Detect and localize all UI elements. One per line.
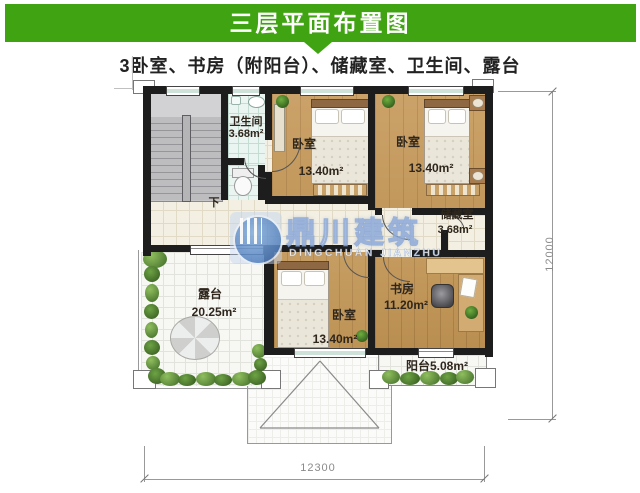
floor-plan-page: 三层平面布置图 3卧室、书房（附阳台）、储藏室、卫生间、露台 <box>0 0 640 493</box>
wall <box>221 93 228 200</box>
bed-headboard <box>424 99 470 108</box>
shrub <box>145 284 159 302</box>
bathroom-sink <box>248 96 265 108</box>
wall <box>143 245 190 252</box>
bed-headboard <box>311 99 369 108</box>
bedroom-label: 卧室 <box>396 133 420 150</box>
pillow <box>448 109 467 124</box>
bathroom-area: 3.68m² <box>229 128 264 140</box>
patio-umbrella <box>170 316 220 360</box>
pillow <box>428 109 447 124</box>
dimension-width: 12300 <box>293 462 343 474</box>
watermark-cn-text: 鼎川建筑 <box>286 208 422 252</box>
wall <box>368 93 375 210</box>
window <box>408 86 464 96</box>
bathroom-label: 卫生间 <box>230 113 263 129</box>
shrub <box>145 322 158 338</box>
pillow <box>304 271 325 286</box>
page-title: 三层平面布置图 <box>5 4 636 42</box>
wall <box>143 86 151 256</box>
shrub <box>214 374 232 386</box>
bed-bench <box>426 184 480 196</box>
study-area: 11.20m² <box>384 298 428 312</box>
window <box>166 86 200 96</box>
extension-line <box>132 56 133 90</box>
shrub <box>254 358 267 371</box>
shrub <box>196 372 216 386</box>
bedroom-label: 卧室 <box>292 135 316 152</box>
stair-handrail <box>182 115 191 202</box>
toilet-bowl <box>234 176 252 196</box>
wall <box>364 348 418 355</box>
wall <box>265 93 272 140</box>
window <box>294 348 366 358</box>
column <box>475 368 496 388</box>
shrub <box>382 370 400 384</box>
window <box>300 86 354 96</box>
pillow <box>341 109 364 124</box>
desk-chair <box>431 284 454 308</box>
balcony-label: 阳台5.08m² <box>406 357 468 374</box>
terrace-area: 20.25m² <box>192 305 237 319</box>
wall <box>228 158 244 165</box>
potted-plant <box>276 95 289 108</box>
potted-plant <box>465 306 478 319</box>
potted-plant <box>382 95 395 108</box>
window <box>232 86 260 96</box>
bedroom-label: 卧室 <box>332 306 356 323</box>
extension-line <box>498 91 556 92</box>
shrub <box>144 266 160 282</box>
bedroom-area: 13.40m² <box>299 164 344 178</box>
watermark: 鼎川建筑 DINGCHUAN JIANZHU <box>228 208 538 268</box>
bedroom-area: 13.40m² <box>313 332 358 346</box>
study-label: 书房 <box>390 280 414 297</box>
page-subtitle: 3卧室、书房（附阳台）、储藏室、卫生间、露台 <box>0 52 640 78</box>
dimension-height: 12000 <box>544 232 556 276</box>
shrub <box>248 370 266 385</box>
terrace-label: 露台 <box>198 285 222 302</box>
pillow <box>315 109 338 124</box>
wall <box>452 348 493 355</box>
watermark-en-text: DINGCHUAN JIANZHU <box>289 247 442 259</box>
wall <box>264 348 294 355</box>
shrub <box>160 372 180 386</box>
stair-landing <box>150 93 221 117</box>
bed-bench <box>313 184 367 196</box>
page-title-banner: 三层平面布置图 <box>5 4 636 42</box>
potted-plant <box>356 330 368 342</box>
shrub <box>144 304 159 319</box>
shrub <box>178 374 196 386</box>
wall <box>265 196 375 204</box>
dimension-line-bottom <box>145 479 485 480</box>
watermark-building-icon <box>240 218 262 244</box>
bedroom-area: 13.40m² <box>409 161 454 175</box>
pillow <box>281 271 302 286</box>
stairs-down-label: 下 <box>209 194 220 210</box>
bathroom-fixture <box>231 96 241 105</box>
extension-line <box>114 88 132 89</box>
bed-blanket <box>425 136 469 183</box>
shrub <box>144 340 160 355</box>
